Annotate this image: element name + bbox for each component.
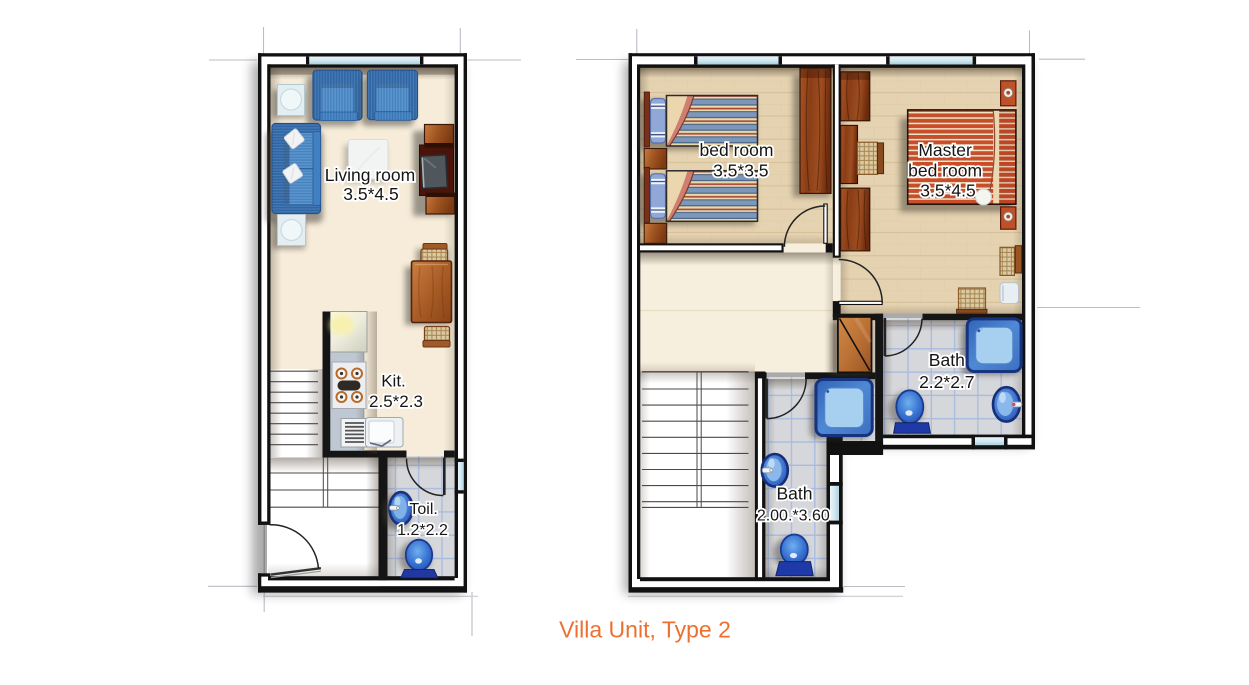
svg-text:3.5*4.5: 3.5*4.5 [343,184,398,204]
svg-text:Master: Master [918,140,972,160]
svg-text:2.2*2.7: 2.2*2.7 [919,372,974,392]
svg-text:3.5*4.5: 3.5*4.5 [920,180,975,200]
svg-text:2.5*2.3: 2.5*2.3 [369,392,423,411]
svg-text:Bath: Bath [929,350,965,370]
svg-text:Living room: Living room [325,165,415,185]
svg-text:Toil.: Toil. [409,501,437,518]
svg-text:Bath: Bath [777,484,813,504]
svg-text:bed room: bed room [908,161,982,181]
svg-text:1.2*2.2: 1.2*2.2 [397,522,448,539]
svg-text:Kit.: Kit. [381,372,406,391]
svg-text:bed room: bed room [700,140,774,160]
svg-text:Villa Unit, Type 2: Villa Unit, Type 2 [559,617,731,643]
svg-text:2.00.*3.60: 2.00.*3.60 [757,508,830,525]
svg-text:3.5*3.5: 3.5*3.5 [713,160,768,180]
